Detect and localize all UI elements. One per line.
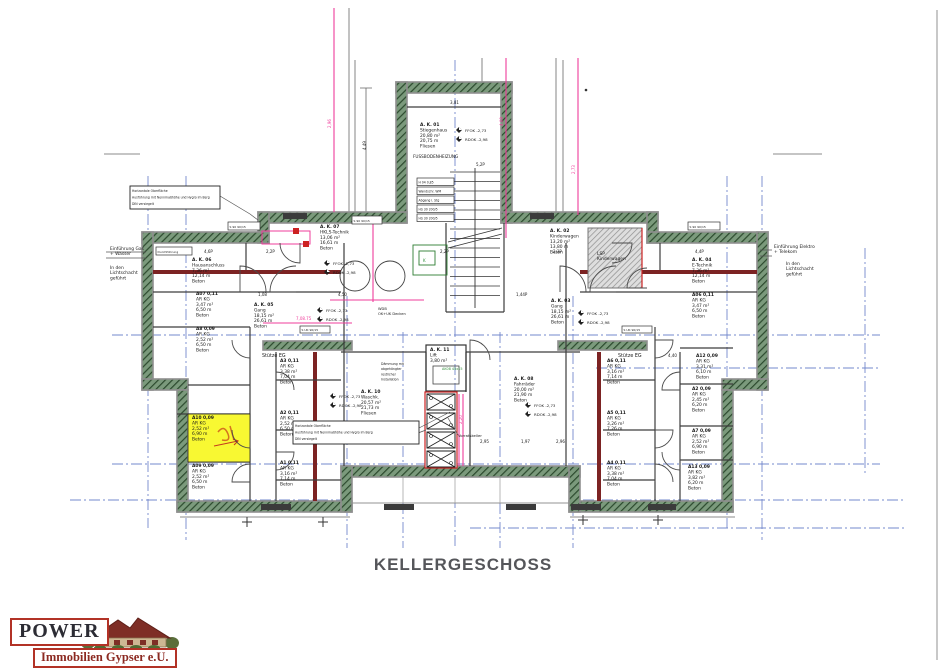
room-label-ar-a02-rechts: A2 0,09 <box>692 386 711 392</box>
room-label-ar-a4-mitte-r: AR KG <box>607 465 621 471</box>
room-label-ar-a13-rechts: Beton <box>688 486 701 492</box>
room-label-e-technik: 7,36 m² <box>692 268 709 274</box>
survey-cross <box>318 517 328 527</box>
note-box-0-line: Horizontale Oberfläche <box>132 189 168 193</box>
annotation-lichtschacht-rechts: Lichtschacht <box>786 266 814 272</box>
room-label-ar-a13-rechts: 6,20 m <box>688 480 703 486</box>
annotation-lichtschacht-links: Lichtschacht <box>110 270 138 276</box>
room-label-ar-a07-rechts: Beton <box>692 450 705 456</box>
room-label-gang-links: 26,61 m <box>254 318 272 324</box>
dimension-label: 1,44P <box>516 292 528 297</box>
room-label-ar-a07-links: AR KG <box>196 296 210 302</box>
lintel-tag-text: S 90 90/15 <box>690 225 706 229</box>
room-label-hausanschluss: 12,14 m <box>192 273 210 279</box>
room-label-ar-a02-rechts: Beton <box>692 408 705 414</box>
annotation-stuetze-eg-links: Stütze EG <box>262 353 286 359</box>
hs-panel-text: Wandschr. WM <box>419 190 442 194</box>
room-label-e-technik: E-Technik <box>692 262 713 268</box>
lintel-tag-text: S UK 90/15 <box>302 328 319 332</box>
room-label-gang-links: Gang <box>254 307 266 313</box>
dimension-label: 4,40 <box>668 353 677 358</box>
room-label-ar-a06-rechts: Beton <box>692 314 705 320</box>
lintel-tag-text: S UK 90/15 <box>624 328 641 332</box>
dimension-label: 4,09 <box>499 117 504 126</box>
hs-panel-text: H 04 0,85 <box>419 181 434 185</box>
window-opening <box>261 504 291 510</box>
elevation-marker-label: RDOK -2,98 <box>534 412 557 417</box>
door-swing <box>232 464 250 482</box>
room-label-ar-a1-mitte: 3,16 m² <box>280 471 297 477</box>
annotation-daemmung-note: Dämmung mit <box>381 362 405 366</box>
room-label-ar-a07-rechts: 6,90 m <box>692 444 707 450</box>
annotation-k-box-label: K <box>423 258 426 263</box>
room-label-gang-rechts: A. K. 03 <box>551 298 570 304</box>
annotation-wdb-decken: WDB <box>378 307 387 311</box>
room-label-ar-a10-gelb: A10 0,09 <box>192 415 214 421</box>
survey-cross <box>242 517 252 527</box>
elevation-marker-label: RDOK -2,98 <box>333 270 356 275</box>
room-label-ar-a09-links: 2,52 m² <box>192 474 209 480</box>
room-label-e-technik: 12,14 m <box>692 273 710 279</box>
room-label-fahrraeder: 20,00 m² <box>514 387 534 393</box>
room-label-fahrraeder: A. K. 08 <box>514 376 533 382</box>
room-label-hausanschluss: A. K. 06 <box>192 257 211 263</box>
door-swing <box>655 430 673 448</box>
room-label-ar-a13-rechts: 3,82 m² <box>688 475 705 481</box>
room-label-ar-a06-rechts: 3,47 m² <box>692 303 709 309</box>
door-swing <box>270 266 296 292</box>
room-label-gang-rechts: 18,15 m² <box>551 309 571 315</box>
elevation-marker-label: FFOK -2,73 <box>534 403 556 408</box>
elevation-marker-label: RDOK -2,98 <box>587 320 610 325</box>
elevation-marker-label: FFOK -2,73 <box>587 311 609 316</box>
room-label-ar-a07-links: 3,47 m² <box>196 302 213 308</box>
hs-panel-text: HS 30 200/5 <box>419 208 438 212</box>
room-label-ar-a07-links: 6,50 m <box>196 307 211 313</box>
elevation-marker-label: FFOK -2,73 <box>339 394 361 399</box>
room-label-ar-a3-mitte: Beton <box>280 380 293 386</box>
room-label-lift: 3,80 m² <box>430 358 447 364</box>
dimension-label: 2,20 <box>458 415 463 424</box>
room-label-ar-a02-rechts: AR KG <box>692 391 706 397</box>
room-label-ar-a5-mitte-r: 3,26 m² <box>607 421 624 427</box>
room-label-ar-a10-gelb: 2,52 m² <box>192 426 209 432</box>
lintel-tag-text: S 90 90/15 <box>354 219 370 223</box>
room-label-ar-a3-mitte: AR KG <box>280 363 294 369</box>
dimension-label: 2,2P <box>440 249 449 254</box>
room-label-ar-a12-rechts: Beton <box>696 375 709 381</box>
room-label-ar-a2-mitte: A2 0,11 <box>280 410 299 416</box>
room-label-ar-a1-mitte: 7,14 m <box>280 476 295 482</box>
annotation-stuetze-eg-rechts: Stütze EG <box>618 353 642 359</box>
room-label-ar-a8-links: A8 0,09 <box>196 326 215 332</box>
room-label-gang-rechts: Gang <box>551 303 563 309</box>
room-label-ar-a5-mitte-r: 7,26 m <box>607 426 622 432</box>
room-label-hausanschluss: 7,36 m² <box>192 268 209 274</box>
note-box-1-line: Horizontale Oberfläche <box>295 424 331 428</box>
annotation-einfuehrung-gas: Einführung Gas <box>110 246 145 252</box>
dimension-label: 2,96 <box>556 439 565 444</box>
room-label-ar-a6-mitte-r: 7,14 m <box>607 374 622 380</box>
dimension-label: 2,73 <box>571 165 576 174</box>
room-label-hkls-technik: Beton <box>320 246 333 252</box>
room-label-ar-a5-mitte-r: AR KG <box>607 415 621 421</box>
logo-power-text: POWER <box>10 618 109 646</box>
room-label-ar-a4-mitte-r: A4 0,11 <box>607 460 626 466</box>
dimension-label: 3,81 <box>450 100 459 105</box>
room-label-ar-a10-gelb: Beton <box>192 437 205 443</box>
room-label-ar-a12-rechts: A12 0,09 <box>696 353 718 359</box>
elevation-marker-label: FFOK -2,73 <box>333 261 355 266</box>
annotation-daemmung-note: restlicher <box>381 372 397 376</box>
door-swing <box>470 340 490 360</box>
annotation-lsp-kinderwagen: LSP <box>597 251 605 257</box>
note-box-0-line: Ausführung mit Nennmaßhöhe und Hygro im … <box>132 196 210 200</box>
room-label-ar-a06-rechts: 6,50 m <box>692 308 707 314</box>
room-label-fahrraeder: 21,90 m <box>514 392 532 398</box>
installation-shaft <box>425 392 457 468</box>
door-swing <box>240 266 266 292</box>
room-label-gang-links: 18,15 m² <box>254 313 274 319</box>
logo-subtitle-text: Immobilien Gypser e.U. <box>33 648 177 668</box>
door-swing <box>662 372 680 390</box>
room-label-ar-a3-mitte: 3,38 m² <box>280 369 297 375</box>
hs-panel-text: HS 30 200/5 <box>419 217 438 221</box>
room-label-ar-a02-rechts: 6,20 m <box>692 402 707 408</box>
dimension-label: 4,4P <box>695 249 704 254</box>
room-label-stiegenhaus: Fliesen <box>420 144 436 150</box>
room-label-ar-a06-rechts: AR KG <box>692 297 706 303</box>
room-label-ar-a1-mitte: A1 0,11 <box>280 460 299 466</box>
dimension-label: 4,6P <box>204 249 213 254</box>
room-label-lift: Lift <box>430 352 437 358</box>
window-opening <box>530 213 554 219</box>
room-label-hkls-technik: HKLS-Technik <box>320 229 349 235</box>
room-label-stiegenhaus: Stiegenhaus <box>420 127 448 133</box>
room-label-ar-a8-links: AR KG <box>196 331 210 337</box>
room-label-hkls-technik: 16,61 m <box>320 240 338 246</box>
dimension-label: 2,2P <box>266 249 275 254</box>
staircase <box>448 168 502 308</box>
room-label-hkls-technik: A. K. 07 <box>320 224 339 230</box>
room-label-waschkueche: 20,57 m² <box>361 400 381 406</box>
annotation-lichtschacht-links: geführt <box>110 275 126 281</box>
room-label-gang-rechts: 26,61 m <box>551 314 569 320</box>
room-label-stiegenhaus: 20,80 m² <box>420 133 440 139</box>
room-label-kinderwagen-raum: Kinderwagen <box>550 233 579 239</box>
room-label-ar-a4-mitte-r: Beton <box>607 482 620 488</box>
room-label-ar-a6-mitte-r: AR KG <box>607 363 621 369</box>
room-label-ar-a07-links: Beton <box>196 313 209 319</box>
window-opening <box>506 504 536 510</box>
room-label-ar-a3-mitte: 7,04 m <box>280 374 295 380</box>
room-label-ar-a1-mitte: Beton <box>280 482 293 488</box>
room-label-e-technik: Beton <box>692 279 705 285</box>
dimension-label: 1,97 <box>521 439 530 444</box>
room-label-ar-a13-rechts: AR KG <box>688 469 702 475</box>
room-label-waschkueche: Fliesen <box>361 411 377 417</box>
company-logo: POWER Immobilien Gypser e.U. <box>8 611 188 667</box>
hs-panel-text: Abgang i. Stg <box>419 199 440 203</box>
room-label-ar-a2-mitte: Beton <box>280 432 293 438</box>
room-label-ar-a07-rechts: AR KG <box>692 433 706 439</box>
elevation-marker-label: RDOK -2,98 <box>326 317 349 322</box>
room-label-fahrraeder: Beton <box>514 398 527 404</box>
drawing-title: KELLERGESCHOSS <box>0 555 926 575</box>
dimension-label: 1,08 <box>258 292 267 297</box>
dimension-label: 2,3P <box>553 249 562 254</box>
room-label-ar-a09-links: Beton <box>192 485 205 491</box>
room-label-ar-a07-rechts: A7 0,09 <box>692 428 711 434</box>
room-label-gang-links: A. K. 05 <box>254 302 273 308</box>
lintel-tag-text: Durchführung <box>158 250 179 254</box>
room-label-ar-a06-rechts: A06 0,11 <box>692 292 714 298</box>
room-label-ar-a5-mitte-r: Beton <box>607 432 620 438</box>
room-label-ar-a10-gelb: 6,90 m <box>192 431 207 437</box>
room-label-ar-a12-rechts: 6,10 m <box>696 369 711 375</box>
door-swing <box>232 340 250 358</box>
room-label-gang-rechts: Beton <box>551 320 564 326</box>
dimension-label: 5,2P <box>476 162 485 167</box>
elevation-marker-label: RDOK -2,98 <box>339 403 362 408</box>
annotation-einfuehrung-elektro: + Telekom <box>774 249 797 255</box>
note-box-1-line: DIN versiegelt <box>295 437 318 441</box>
room-label-fahrraeder: Fahrräder <box>514 381 535 387</box>
room-label-ar-a02-rechts: 2,45 m² <box>692 397 709 403</box>
room-label-ar-a4-mitte-r: 3,38 m² <box>607 471 624 477</box>
room-label-ar-a12-rechts: 3,31 m² <box>696 364 713 370</box>
room-label-kinderwagen-raum: A. K. 02 <box>550 228 569 234</box>
room-label-waschkueche: 21,73 m <box>361 405 379 411</box>
room-label-ar-a1-mitte: AR KG <box>280 465 294 471</box>
room-label-ar-a4-mitte-r: 7,04 m <box>607 476 622 482</box>
room-label-ar-a13-rechts: A13 0,09 <box>688 464 710 470</box>
room-label-ar-a6-mitte-r: Beton <box>607 380 620 386</box>
note-box-1-line: Ausführung mit Nennmaßhöhe und Hygro im … <box>295 431 373 435</box>
room-label-hausanschluss: Hausanschluss <box>192 262 225 268</box>
annotation-lichtschacht-rechts: geführt <box>786 271 802 277</box>
annotation-einfuehrung-elektro: Einführung Elektro <box>774 244 815 250</box>
window-opening <box>283 213 307 219</box>
door-swing <box>280 243 300 263</box>
annotation-daemmung-note: Installation <box>381 378 399 382</box>
room-label-hkls-technik: 13,06 m² <box>320 235 340 241</box>
dimension-label: 4,49 <box>362 141 367 150</box>
room-label-lift: A. K. 11 <box>430 347 449 353</box>
dimension-label: 2,95 <box>480 439 489 444</box>
annotation-lichtschacht-links: In den <box>110 265 124 271</box>
lintel-tag-text: S 90 90/15 <box>230 225 246 229</box>
room-label-waschkueche: Waschk. <box>361 394 379 400</box>
room-label-e-technik: A. K. 04 <box>692 257 711 263</box>
room-label-ar-a09-links: A09 0,09 <box>192 463 214 469</box>
elevation-marker-label: FFOK -2,73 <box>465 128 487 133</box>
elevation-marker-label: FFOK -2,73 <box>326 308 348 313</box>
dimension-label: 7,08.75 <box>296 316 312 321</box>
room-label-ar-a07-links: A07 0,11 <box>196 291 218 297</box>
elevation-marker-label: RDOK -2,98 <box>465 137 488 142</box>
light-well-strip <box>352 477 569 503</box>
door-swing <box>560 266 586 292</box>
annotation-einfuehrung-gas: + Wasser <box>110 251 131 257</box>
room-label-ar-a12-rechts: AR KG <box>696 358 710 364</box>
room-label-ar-a09-links: 6,50 m <box>192 479 207 485</box>
room-label-hausanschluss: Beton <box>192 279 205 285</box>
room-label-ar-a09-links: AR KG <box>192 468 206 474</box>
survey-cross <box>578 515 588 525</box>
room-label-ar-a10-gelb: AR KG <box>192 420 206 426</box>
note-box-0-line: DIN versiegelt <box>132 202 155 206</box>
dimension-label: 2,96 <box>327 119 332 128</box>
room-label-stiegenhaus: 20,75 m <box>420 138 438 144</box>
window-opening <box>648 504 676 510</box>
room-label-waschkueche: A. K. 10 <box>361 389 380 395</box>
room-label-ar-a6-mitte-r: 3,16 m² <box>607 369 624 375</box>
dimension-label: 4,50 <box>338 292 347 297</box>
scanned-floor-plan-page: A. K. 01Stiegenhaus20,80 m²20,75 mFliese… <box>0 0 950 671</box>
window-opening <box>571 504 601 510</box>
annotation-vorratskeller: Vorratskeller <box>458 433 482 438</box>
annotation-fussbodenheizung: FUSSBODENHEIZUNG <box>413 154 458 159</box>
room-label-ar-a5-mitte-r: A5 0,11 <box>607 410 626 416</box>
window-opening <box>384 504 414 510</box>
room-label-ar-a2-mitte: AR KG <box>280 415 294 421</box>
room-label-ar-a8-links: 2,52 m² <box>196 337 213 343</box>
room-label-stiegenhaus: A. K. 01 <box>420 122 439 128</box>
room-label-kinderwagen-raum: 13,20 m² <box>550 239 570 245</box>
survey-cross <box>653 515 663 525</box>
annotation-lichtschacht-rechts: In den <box>786 261 800 267</box>
room-label-gang-links: Beton <box>254 324 267 330</box>
room-label-ar-a8-links: Beton <box>196 348 209 354</box>
annotation-daemmung-note: abgehängter <box>381 367 402 371</box>
annotation-wdb-decken: OK+UK Decken <box>378 312 406 316</box>
room-label-ar-a8-links: 6,50 m <box>196 342 211 348</box>
annotation-lsp-kinderwagen: Kinderwagen <box>597 256 626 262</box>
room-label-ar-a07-rechts: 2,52 m² <box>692 439 709 445</box>
annotation-ak-tag: AK08 45x15 <box>442 367 463 371</box>
